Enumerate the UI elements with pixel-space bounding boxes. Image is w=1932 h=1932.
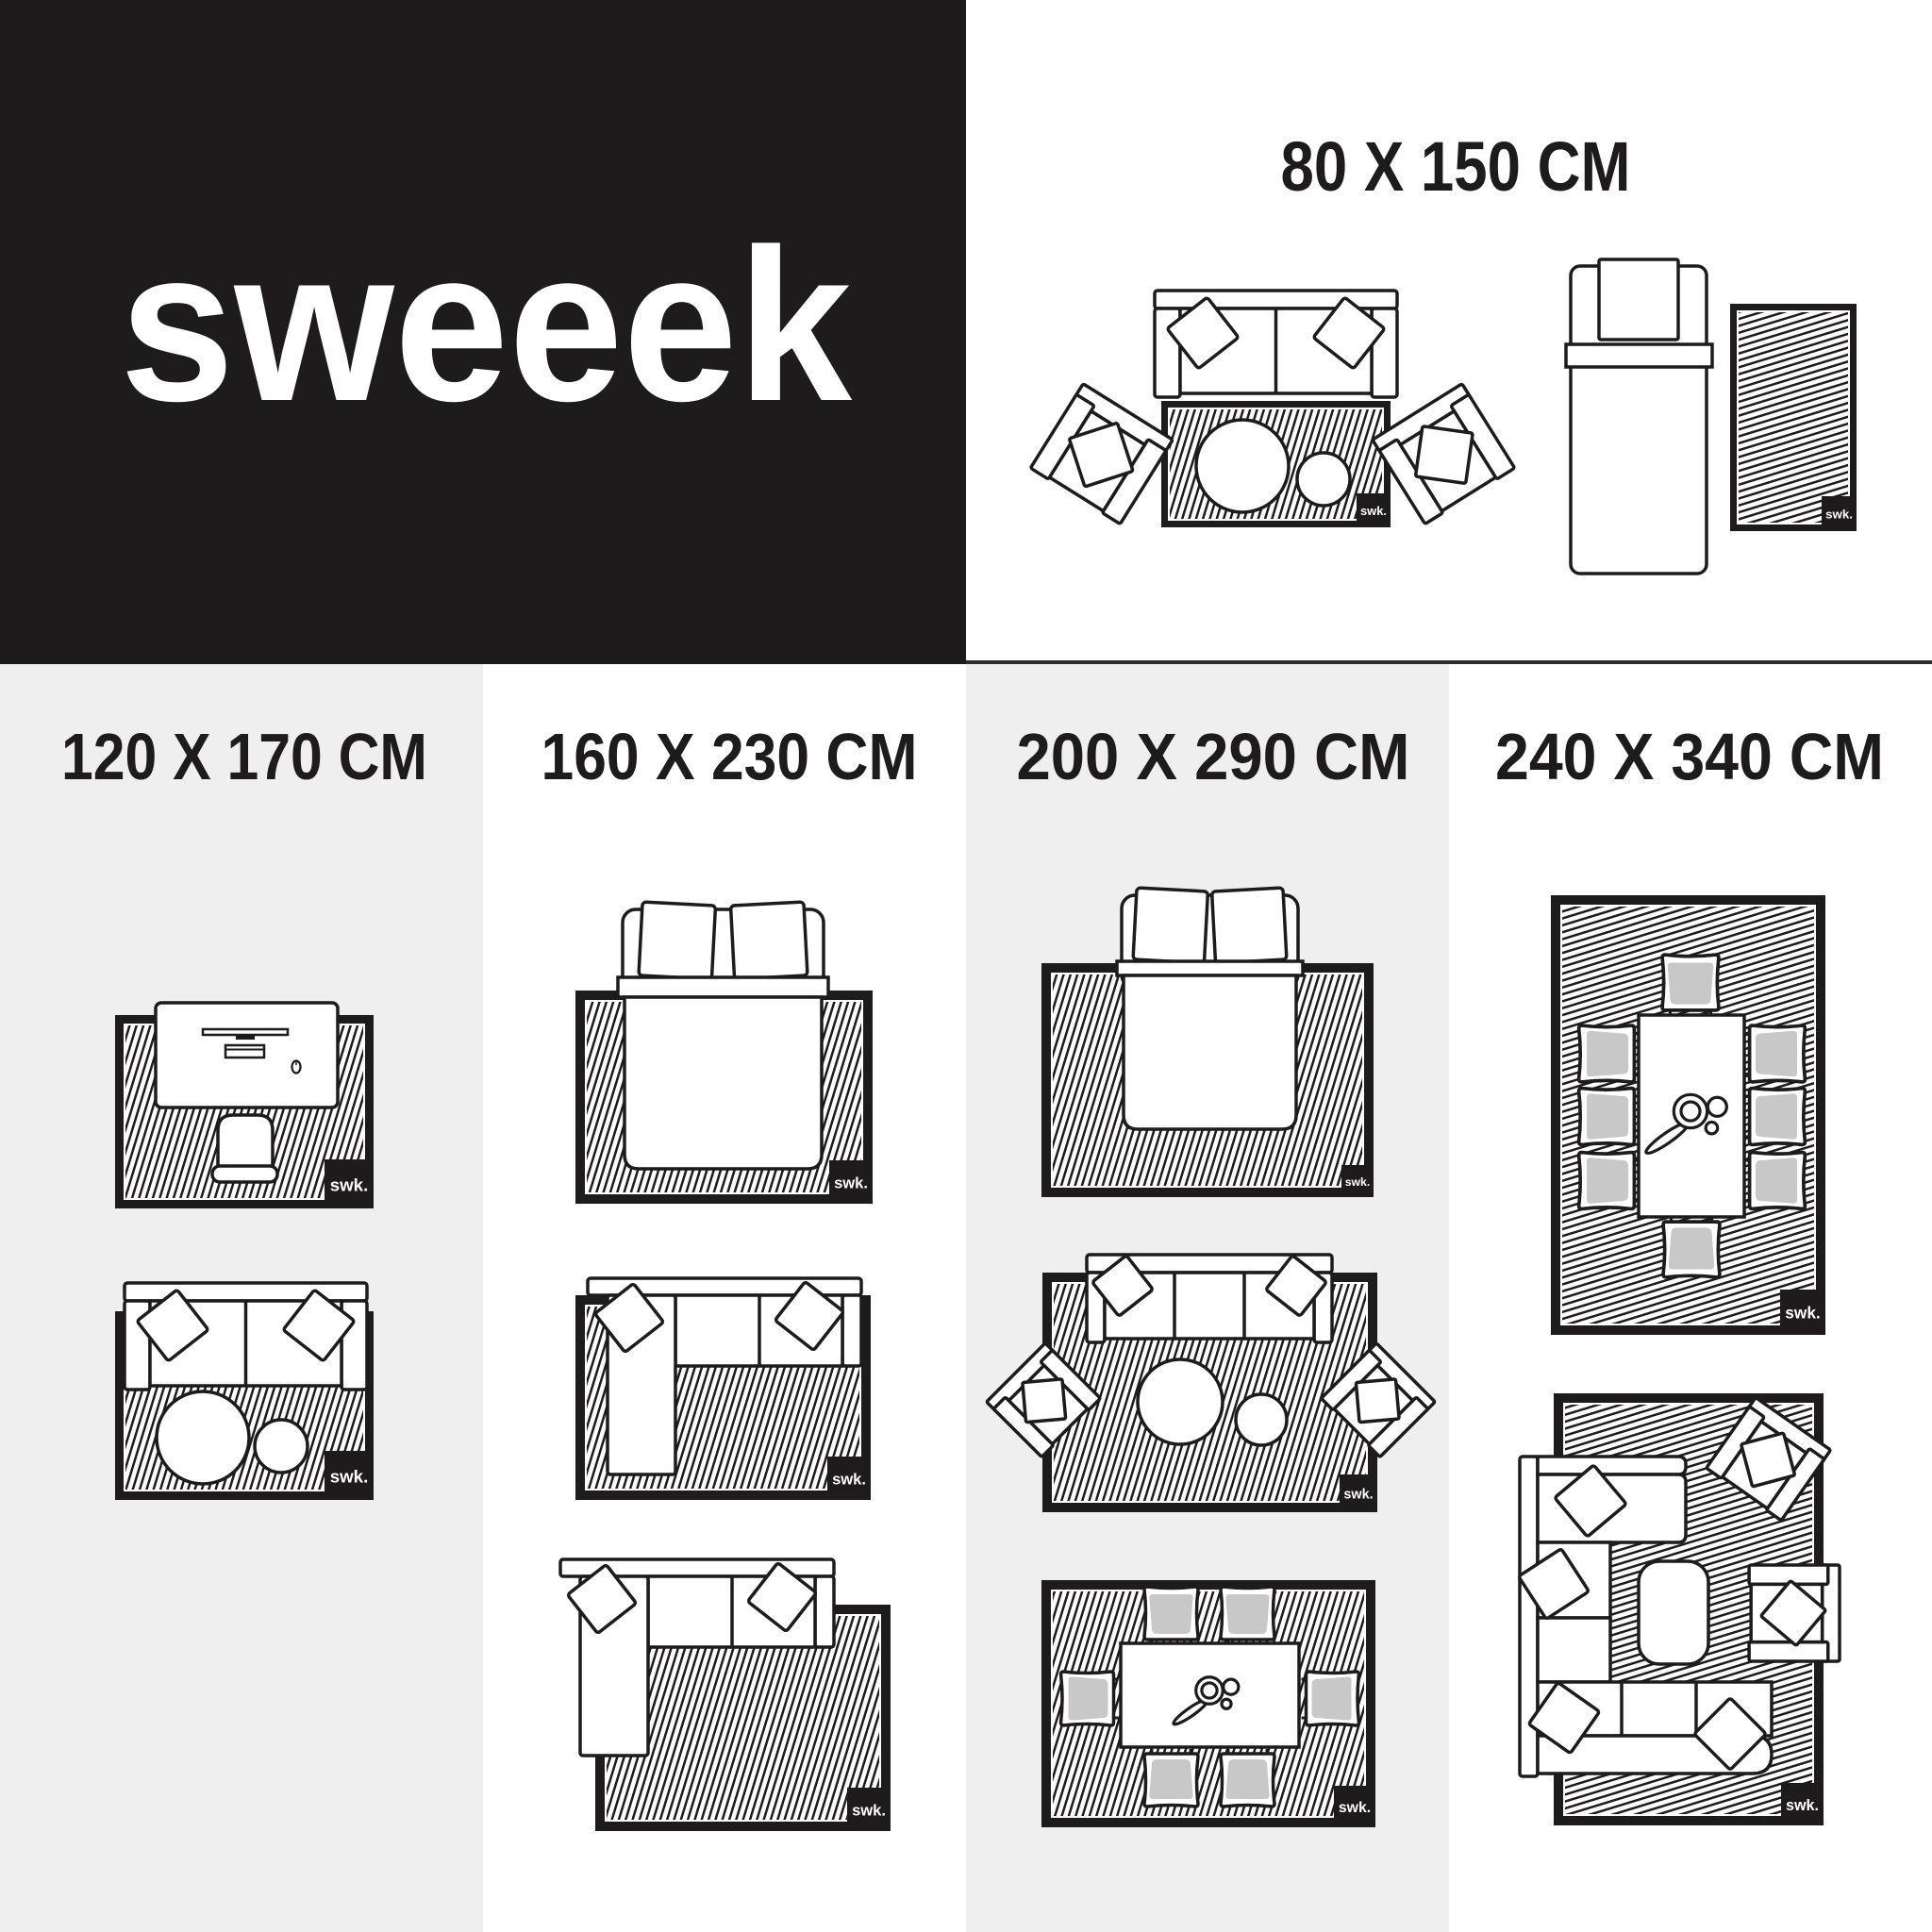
svg-text:swk.: swk.	[1786, 1797, 1819, 1814]
svg-text:swk.: swk.	[1345, 1175, 1371, 1189]
svg-text:swk.: swk.	[1785, 1304, 1820, 1323]
svg-text:160 X 230 CM: 160 X 230 CM	[541, 720, 918, 793]
svg-text:swk.: swk.	[1343, 1488, 1373, 1503]
svg-text:80 X 150 CM: 80 X 150 CM	[1281, 127, 1631, 206]
svg-text:sweeek: sweeek	[120, 204, 853, 446]
svg-text:swk.: swk.	[834, 1174, 868, 1191]
svg-text:200 X 290 CM: 200 X 290 CM	[1017, 720, 1410, 793]
svg-text:swk.: swk.	[852, 1801, 886, 1819]
svg-text:swk.: swk.	[1360, 504, 1387, 518]
svg-text:swk.: swk.	[1339, 1800, 1371, 1816]
svg-text:swk.: swk.	[330, 1174, 369, 1194]
svg-text:240 X 340 CM: 240 X 340 CM	[1495, 720, 1884, 793]
svg-text:120 X 170 CM: 120 X 170 CM	[61, 720, 427, 793]
svg-text:swk.: swk.	[832, 1470, 866, 1488]
svg-text:swk.: swk.	[1825, 508, 1853, 522]
svg-text:swk.: swk.	[330, 1466, 369, 1486]
